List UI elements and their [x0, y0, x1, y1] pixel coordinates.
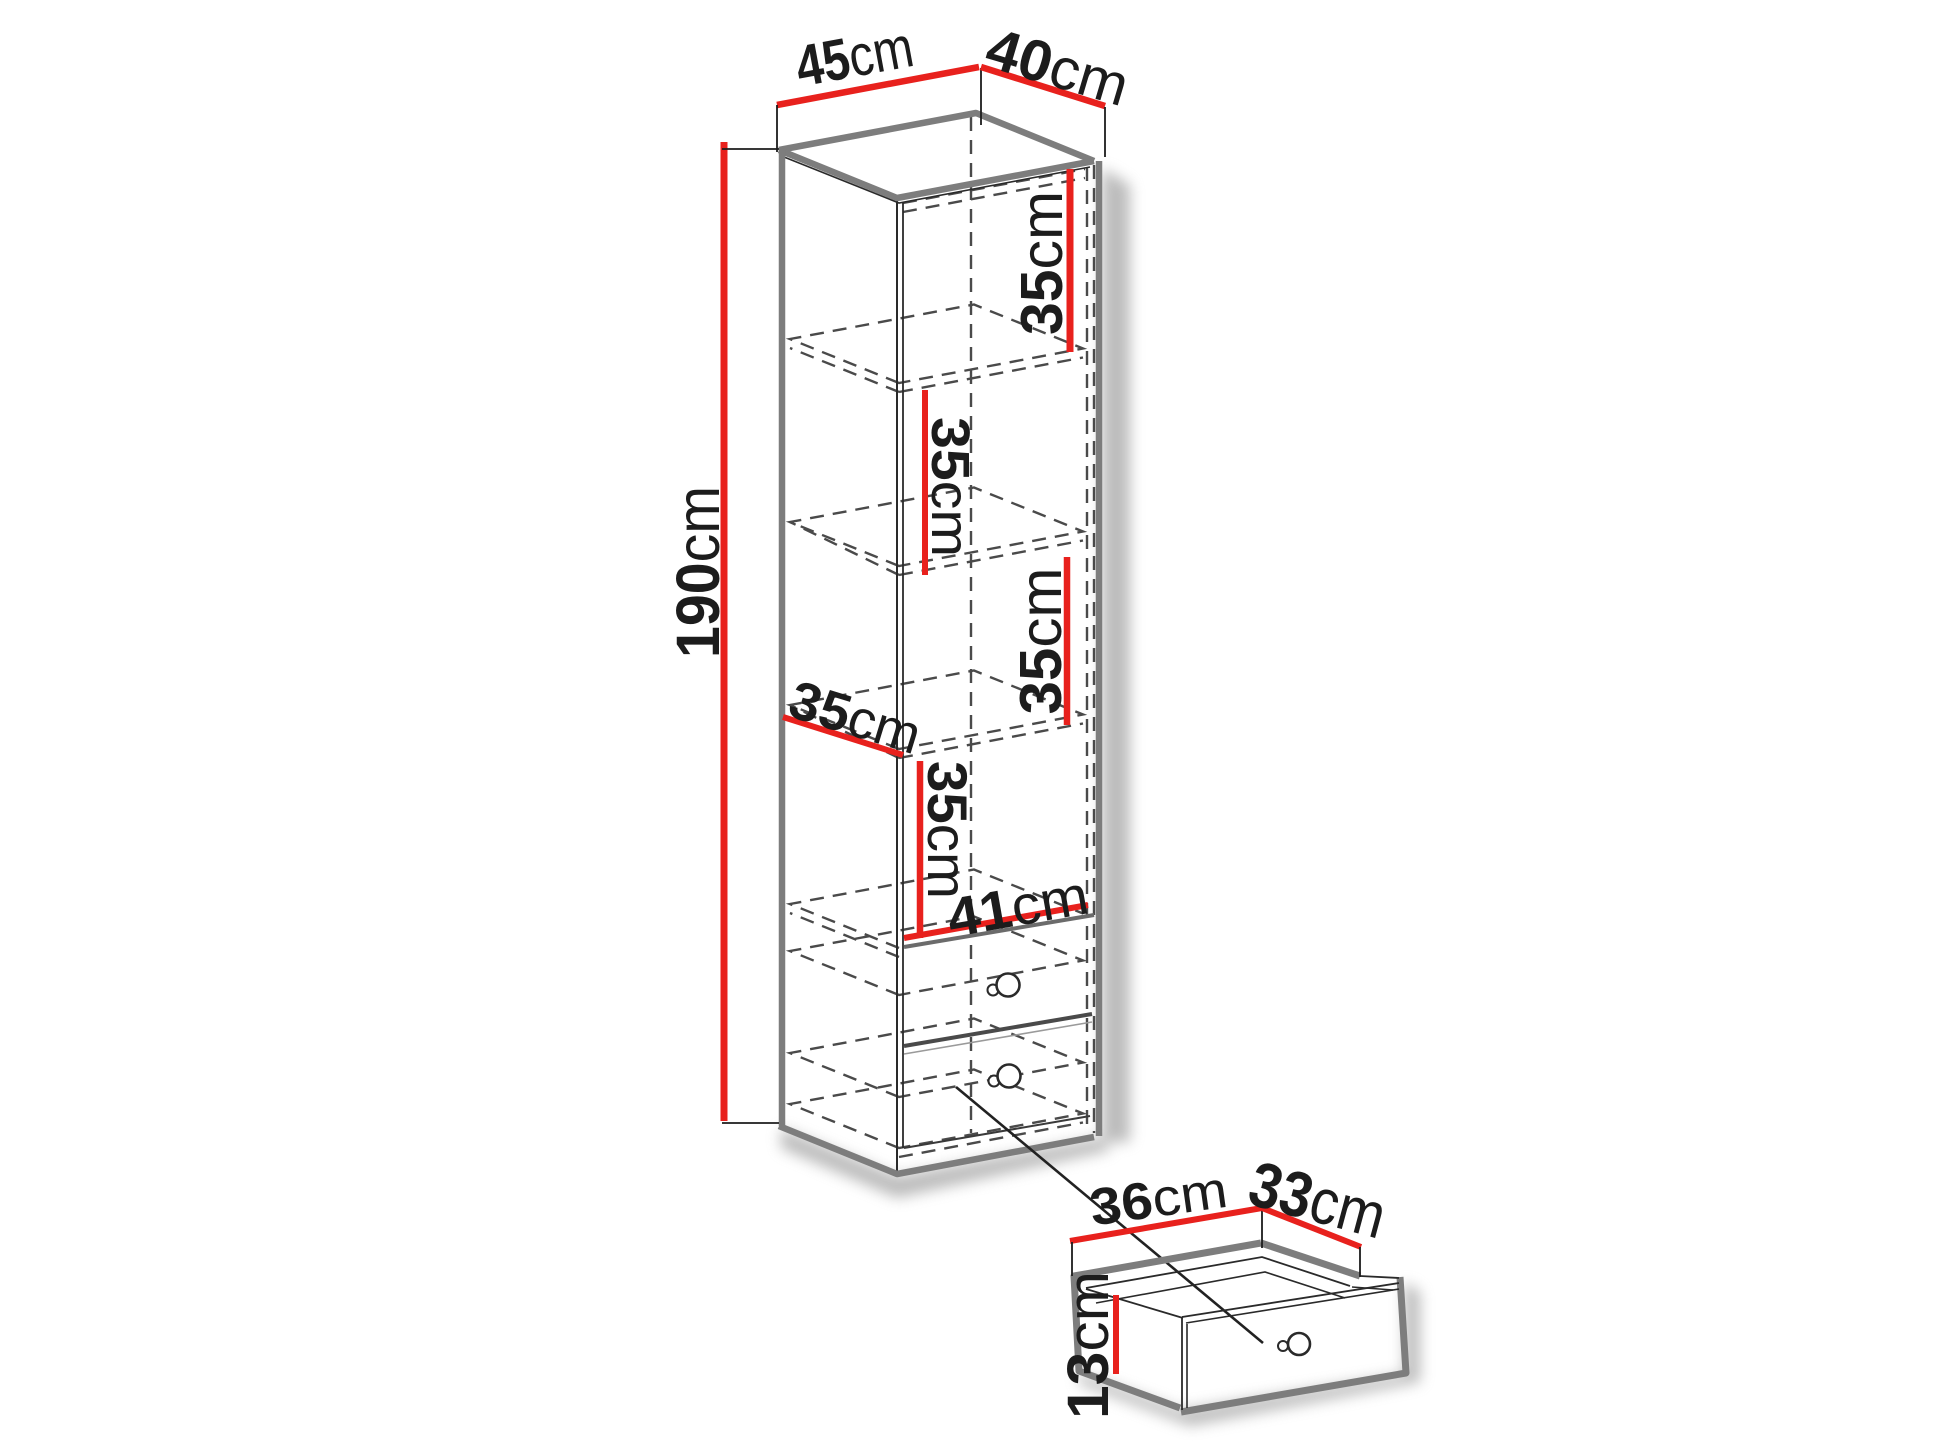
svg-text:190cm: 190cm — [664, 486, 732, 658]
svg-text:35cm: 35cm — [1008, 568, 1074, 715]
svg-text:35cm: 35cm — [920, 417, 980, 557]
svg-text:35cm: 35cm — [916, 761, 979, 899]
svg-text:35cm: 35cm — [1009, 191, 1075, 335]
svg-text:13cm: 13cm — [1056, 1271, 1121, 1419]
